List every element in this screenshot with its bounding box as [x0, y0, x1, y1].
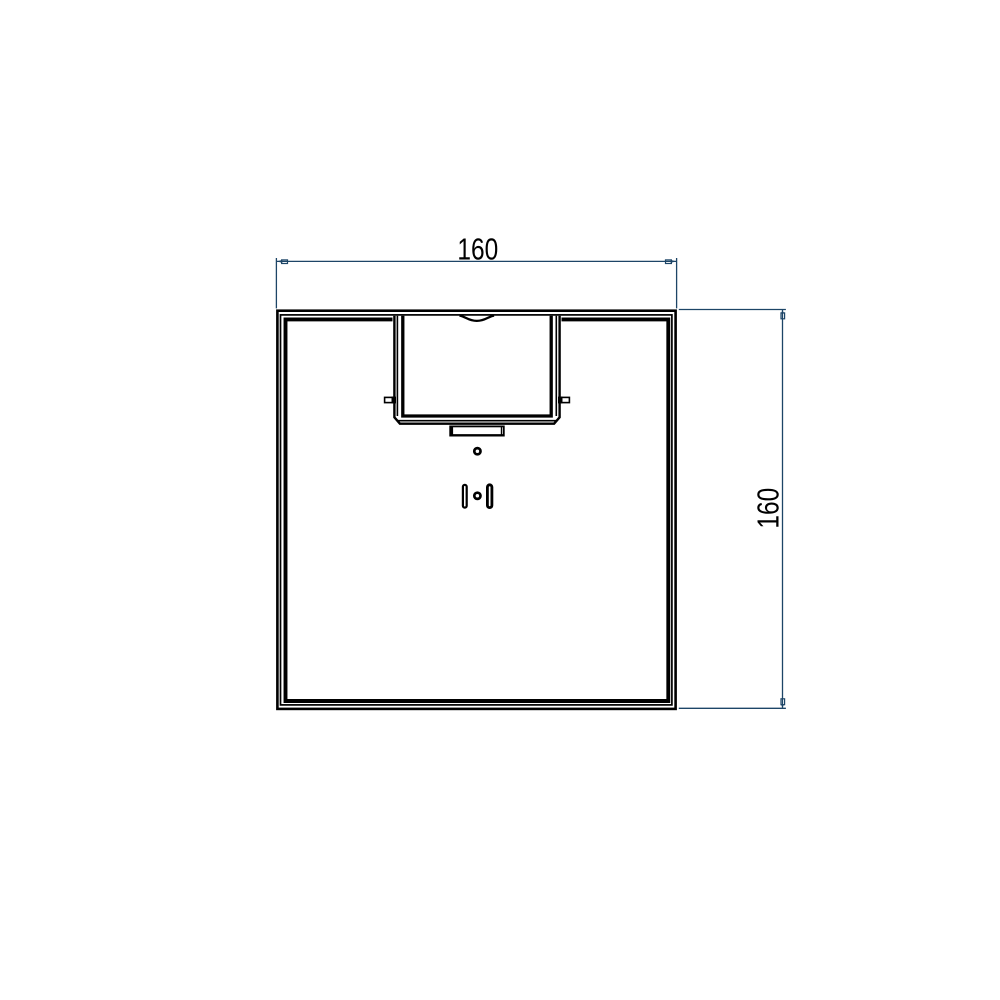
svg-text:160: 160 — [457, 232, 498, 266]
svg-text:160: 160 — [751, 488, 785, 529]
